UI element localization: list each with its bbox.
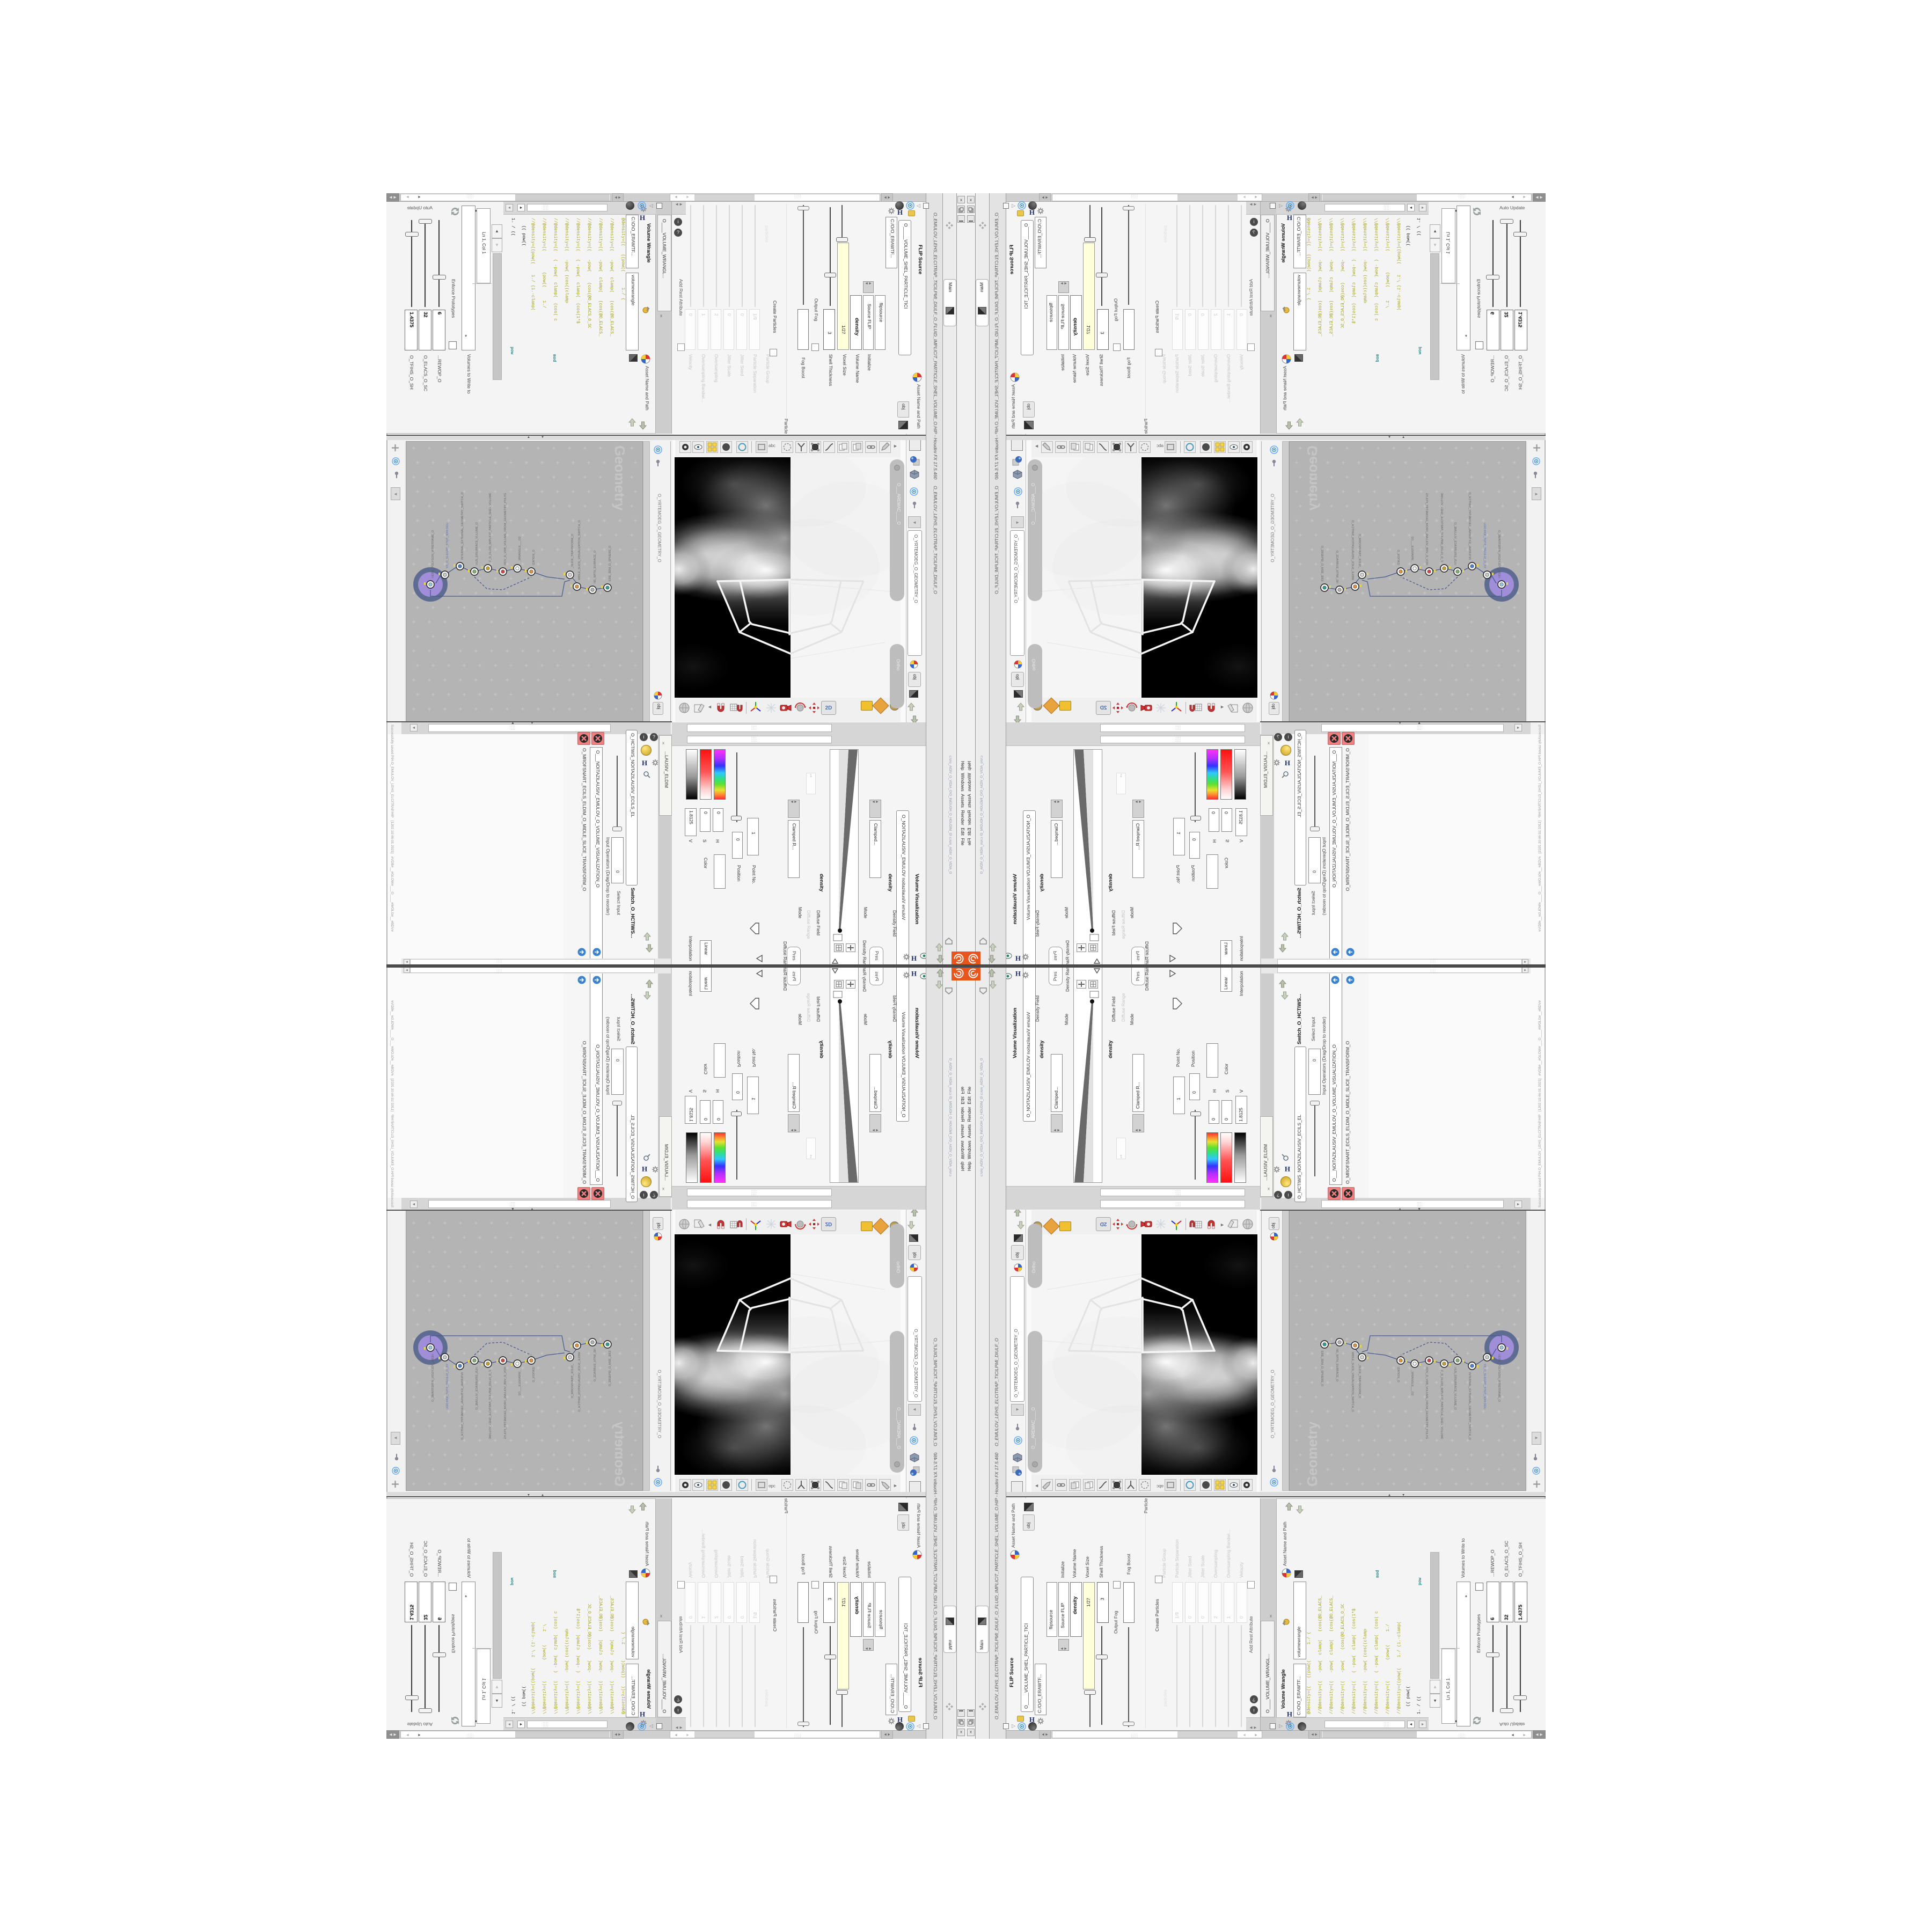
svg-text:RDV_D_VDB_VOLUME_FROM_GEOMETRY: RDV_D_VDB_VOLUME_FROM_GEOMETRY_POLYG <box>1425 493 1428 565</box>
svg-text:MIDLE_SLICE_VISUALIZATION_SWIT: MIDLE_SLICE_VISUALIZATION_SWITCH_O <box>578 1352 581 1412</box>
svg-text:ERE_3DM_O_SPHERE_O: ERE_3DM_O_SPHERE_O <box>609 1351 612 1387</box>
svg-text:HERE_POLYGON_WIREFRAME_O: HERE_POLYGON_WIREFRAME_O <box>431 1354 435 1402</box>
svg-text:_SLICE_TRANSFORM_O: _SLICE_TRANSFORM_O <box>1358 1363 1361 1399</box>
svg-text:_WRANGLE___O2: _WRANGLE___O2 <box>1410 537 1414 562</box>
svg-text:NE_WITH_SURFACE_O: NE_WITH_SURFACE_O <box>594 550 597 583</box>
svg-text:MIDLE_SLICE_VISUALIZATION_SWIT: MIDLE_SLICE_VISUALIZATION_SWITCH_O <box>578 520 581 580</box>
svg-text:F_D_FLUID_IMPLICIT_PARTICLE_SH: F_D_FLUID_IMPLICIT_PARTICLE_SHEL_VOLUME <box>1440 1370 1443 1439</box>
svg-text:F_D_FLUID_IMPLICIT_PARTICLE_SH: F_D_FLUID_IMPLICIT_PARTICLE_SHEL_VOLUME <box>1440 493 1443 562</box>
svg-text:INTERNAL_EXTERNAL_GEOMETRY_SWI: INTERNAL_EXTERNAL_GEOMETRY_SWITCH_O <box>1468 1372 1471 1440</box>
svg-text:RDV_D_VDB_VOLUME_FROM_GEOMETRY: RDV_D_VDB_VOLUME_FROM_GEOMETRY_POLYG <box>504 493 507 565</box>
svg-text:RUS_DISURFACE_VOLUME_O: RUS_DISURFACE_VOLUME_O <box>475 522 479 565</box>
svg-text:SS_O_SLEGRT_STEP_3DM.DEU: SS_O_SLEGRT_STEP_3DM.DEU <box>1483 523 1486 568</box>
svg-text:IZATION_O: IZATION_O <box>532 550 536 565</box>
svg-text:IZATION_O: IZATION_O <box>1396 1367 1400 1382</box>
svg-text:_SLICE_TRANSFORM_O: _SLICE_TRANSFORM_O <box>571 1363 574 1399</box>
svg-text:IZATION_O: IZATION_O <box>532 1367 536 1382</box>
svg-text:NE_WITH_SURFACE_O: NE_WITH_SURFACE_O <box>594 1349 597 1382</box>
svg-text:RUS_DISURFACE_VOLUME_O: RUS_DISURFACE_VOLUME_O <box>1453 522 1457 565</box>
svg-text:RUS_DISURFACE_VOLUME_O: RUS_DISURFACE_VOLUME_O <box>1453 1367 1457 1410</box>
svg-text:INTERNAL_EXTERNAL_GEOMETRY_SWI: INTERNAL_EXTERNAL_GEOMETRY_SWITCH_O <box>461 1372 464 1440</box>
svg-text:HERE_POLYGON_WIREFRAME_O: HERE_POLYGON_WIREFRAME_O <box>431 530 435 578</box>
svg-text:ERE_3DM_O_SPHERE_O: ERE_3DM_O_SPHERE_O <box>1320 545 1323 581</box>
svg-text:SS_O_SLEGRT_STEP_3DM.DEU: SS_O_SLEGRT_STEP_3DM.DEU <box>446 523 449 568</box>
svg-text:_WRANGLE___O2: _WRANGLE___O2 <box>518 537 522 562</box>
svg-text:HERE_POLYGON_WIREFRAME_O: HERE_POLYGON_WIREFRAME_O <box>1497 530 1501 578</box>
svg-text:RDV_D_VDB_VOLUME_FROM_GEOMETRY: RDV_D_VDB_VOLUME_FROM_GEOMETRY_POLYG <box>1425 1367 1428 1439</box>
svg-text:NE_WITH_SURFACE_O: NE_WITH_SURFACE_O <box>1335 550 1338 583</box>
svg-text:HERE_POLYGON_WIREFRAME_O: HERE_POLYGON_WIREFRAME_O <box>1497 1354 1501 1402</box>
svg-text:F_D_FLUID_IMPLICIT_PARTICLE_SH: F_D_FLUID_IMPLICIT_PARTICLE_SHEL_VOLUME <box>489 1370 492 1439</box>
svg-text:INTERNAL_EXTERNAL_GEOMETRY_SWI: INTERNAL_EXTERNAL_GEOMETRY_SWITCH_O <box>461 492 464 560</box>
svg-text:_SLICE_TRANSFORM_O: _SLICE_TRANSFORM_O <box>571 533 574 569</box>
svg-text:NE_WITH_SURFACE_O: NE_WITH_SURFACE_O <box>1335 1349 1338 1382</box>
svg-text:F_D_FLUID_IMPLICIT_PARTICLE_SH: F_D_FLUID_IMPLICIT_PARTICLE_SHEL_VOLUME <box>489 493 492 562</box>
svg-text:ERE_3DM_O_SPHERE_O: ERE_3DM_O_SPHERE_O <box>609 545 612 581</box>
svg-text:SS_O_SLEGRT_STEP_3DM.DEU: SS_O_SLEGRT_STEP_3DM.DEU <box>446 1364 449 1409</box>
svg-text:RDV_D_VDB_VOLUME_FROM_GEOMETRY: RDV_D_VDB_VOLUME_FROM_GEOMETRY_POLYG <box>504 1367 507 1439</box>
svg-text:_WRANGLE___O2: _WRANGLE___O2 <box>518 1370 522 1395</box>
svg-text:ERE_3DM_O_SPHERE_O: ERE_3DM_O_SPHERE_O <box>1320 1351 1323 1387</box>
svg-text:_WRANGLE___O2: _WRANGLE___O2 <box>1410 1370 1414 1395</box>
svg-text:_SLICE_TRANSFORM_O: _SLICE_TRANSFORM_O <box>1358 533 1361 569</box>
svg-text:IZATION_O: IZATION_O <box>1396 550 1400 565</box>
svg-text:MIDLE_SLICE_VISUALIZATION_SWIT: MIDLE_SLICE_VISUALIZATION_SWITCH_O <box>1351 520 1354 580</box>
svg-text:SS_O_SLEGRT_STEP_3DM.DEU: SS_O_SLEGRT_STEP_3DM.DEU <box>1483 1364 1486 1409</box>
svg-text:MIDLE_SLICE_VISUALIZATION_SWIT: MIDLE_SLICE_VISUALIZATION_SWITCH_O <box>1351 1352 1354 1412</box>
svg-text:INTERNAL_EXTERNAL_GEOMETRY_SWI: INTERNAL_EXTERNAL_GEOMETRY_SWITCH_O <box>1468 492 1471 560</box>
svg-text:RUS_DISURFACE_VOLUME_O: RUS_DISURFACE_VOLUME_O <box>475 1367 479 1410</box>
